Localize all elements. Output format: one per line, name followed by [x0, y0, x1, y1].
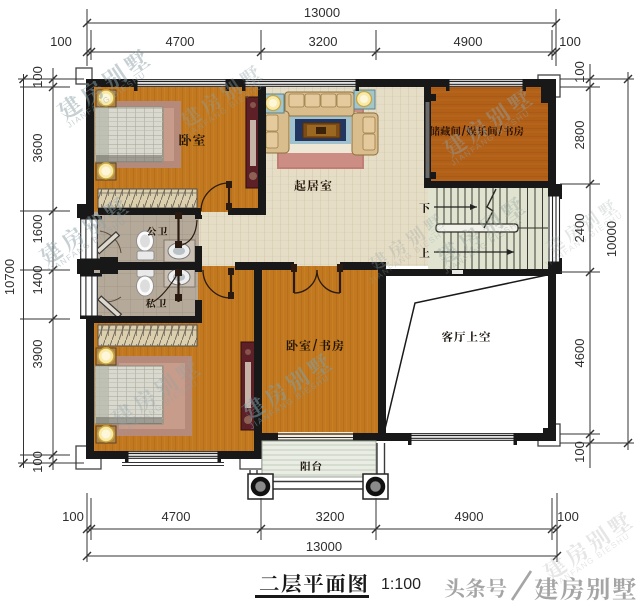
svg-text:4900: 4900 [455, 509, 484, 524]
svg-text:100: 100 [30, 451, 45, 473]
svg-text:4600: 4600 [572, 339, 587, 368]
svg-text:100: 100 [30, 66, 45, 88]
svg-text:100: 100 [50, 34, 72, 49]
svg-text:3200: 3200 [309, 34, 338, 49]
svg-text:4900: 4900 [454, 34, 483, 49]
svg-text:4700: 4700 [162, 509, 191, 524]
svg-text:1400: 1400 [30, 266, 45, 295]
svg-text:13000: 13000 [304, 5, 340, 20]
svg-text:100: 100 [572, 441, 587, 463]
svg-text:4700: 4700 [166, 34, 195, 49]
svg-text:3600: 3600 [30, 134, 45, 163]
svg-text:100: 100 [572, 61, 587, 83]
svg-text:3200: 3200 [316, 509, 345, 524]
svg-text:10700: 10700 [2, 259, 17, 295]
svg-text:3900: 3900 [30, 340, 45, 369]
svg-text:100: 100 [62, 509, 84, 524]
svg-text:1600: 1600 [30, 215, 45, 244]
svg-text:13000: 13000 [306, 539, 342, 554]
svg-text:100: 100 [557, 509, 579, 524]
svg-text:1:100: 1:100 [381, 576, 421, 593]
svg-text:100: 100 [559, 34, 581, 49]
svg-text:2800: 2800 [572, 121, 587, 150]
